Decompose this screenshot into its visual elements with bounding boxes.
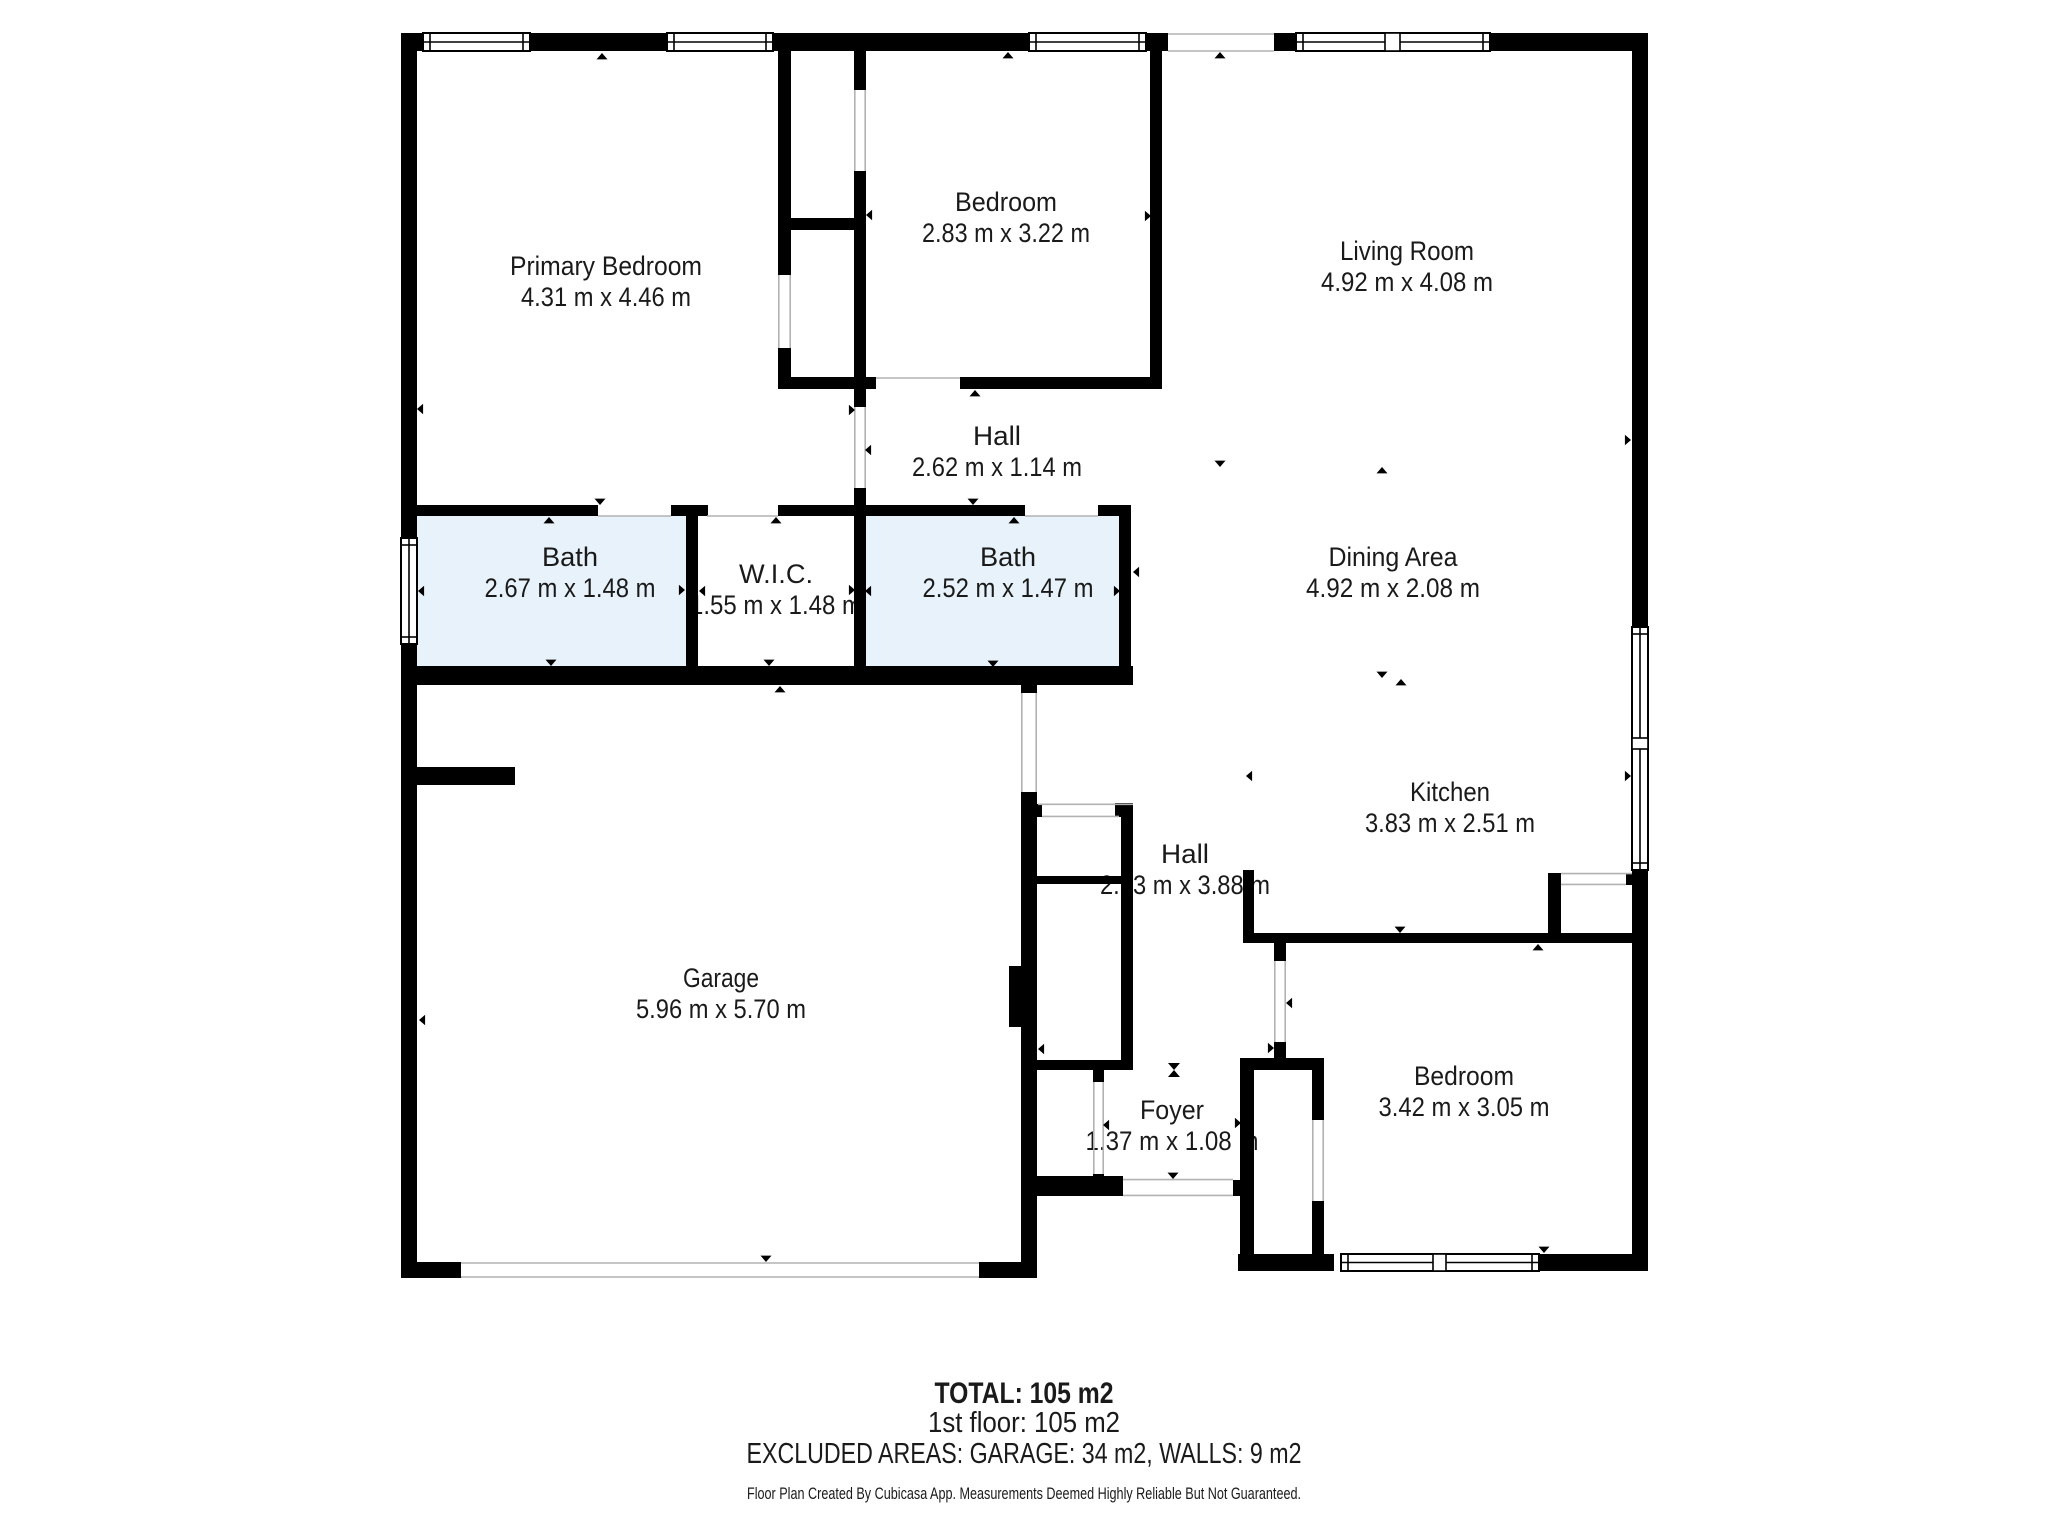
- svg-text:4.92 m x 2.08 m: 4.92 m x 2.08 m: [1306, 573, 1480, 603]
- svg-text:1st floor: 105 m2: 1st floor: 105 m2: [928, 1407, 1120, 1439]
- svg-text:2.52 m x 1.47 m: 2.52 m x 1.47 m: [923, 573, 1094, 603]
- svg-text:Kitchen: Kitchen: [1410, 777, 1490, 807]
- svg-text:2.83 m x 3.22 m: 2.83 m x 3.22 m: [922, 218, 1090, 248]
- svg-text:EXCLUDED AREAS: GARAGE: 34 m2,: EXCLUDED AREAS: GARAGE: 34 m2, WALLS: 9 …: [747, 1438, 1302, 1470]
- svg-text:TOTAL: 105 m2: TOTAL: 105 m2: [935, 1377, 1114, 1410]
- svg-text:Bedroom: Bedroom: [955, 187, 1057, 217]
- svg-text:3.83 m x 2.51 m: 3.83 m x 2.51 m: [1365, 808, 1535, 838]
- svg-text:Living Room: Living Room: [1340, 236, 1474, 266]
- svg-text:1.37 m x 1.08 m: 1.37 m x 1.08 m: [1086, 1126, 1259, 1156]
- svg-text:4.31 m x 4.46 m: 4.31 m x 4.46 m: [521, 282, 691, 312]
- svg-text:Hall: Hall: [973, 421, 1021, 451]
- svg-text:2.62 m x 1.14 m: 2.62 m x 1.14 m: [912, 452, 1082, 482]
- svg-text:Bath: Bath: [542, 542, 598, 572]
- svg-text:Garage: Garage: [683, 963, 759, 993]
- svg-text:Dining Area: Dining Area: [1329, 542, 1459, 572]
- svg-text:Foyer: Foyer: [1140, 1095, 1204, 1125]
- svg-text:2.67 m x 1.48 m: 2.67 m x 1.48 m: [485, 573, 656, 603]
- svg-text:3.42 m x 3.05 m: 3.42 m x 3.05 m: [1379, 1092, 1550, 1122]
- svg-text:Hall: Hall: [1161, 839, 1209, 869]
- svg-text:Primary Bedroom: Primary Bedroom: [510, 251, 702, 281]
- svg-text:5.96 m x 5.70 m: 5.96 m x 5.70 m: [636, 994, 806, 1024]
- svg-text:4.92 m x 4.08 m: 4.92 m x 4.08 m: [1321, 267, 1493, 297]
- svg-text:Bedroom: Bedroom: [1414, 1061, 1514, 1091]
- svg-text:1.55 m x 1.48 m: 1.55 m x 1.48 m: [690, 590, 862, 620]
- svg-text:W.I.C.: W.I.C.: [739, 559, 813, 589]
- svg-text:Bath: Bath: [980, 542, 1036, 572]
- svg-text:Floor Plan Created By Cubicasa: Floor Plan Created By Cubicasa App. Meas…: [747, 1485, 1301, 1503]
